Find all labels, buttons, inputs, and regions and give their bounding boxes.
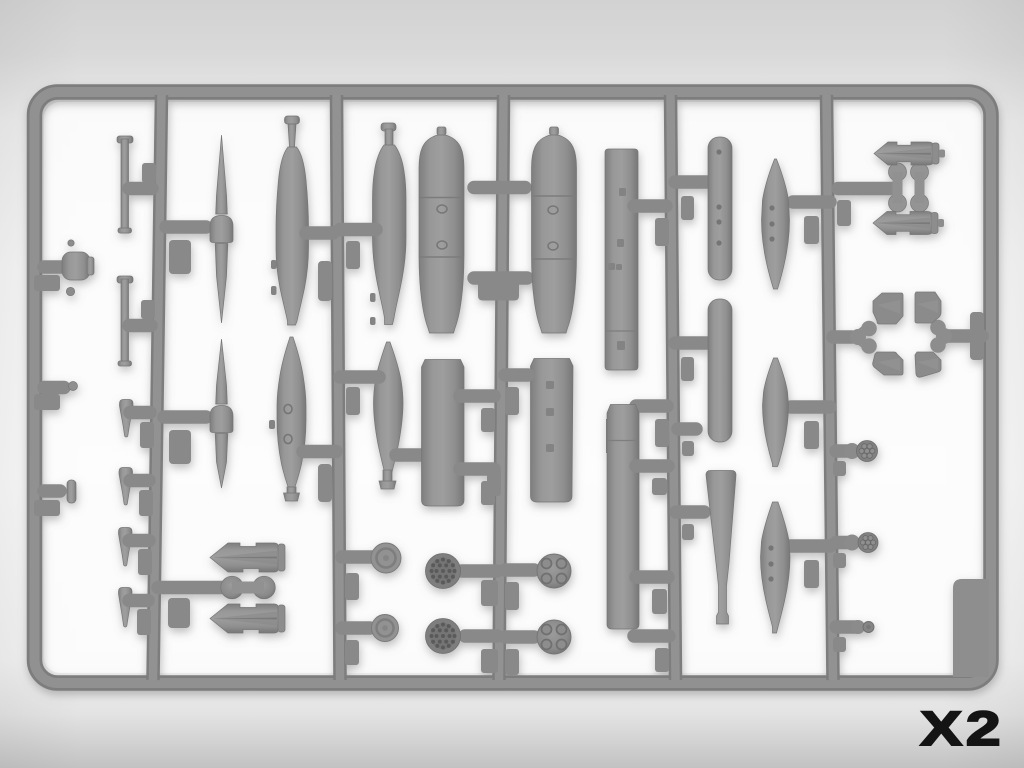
svg-text:X2: X2 (920, 702, 1004, 755)
